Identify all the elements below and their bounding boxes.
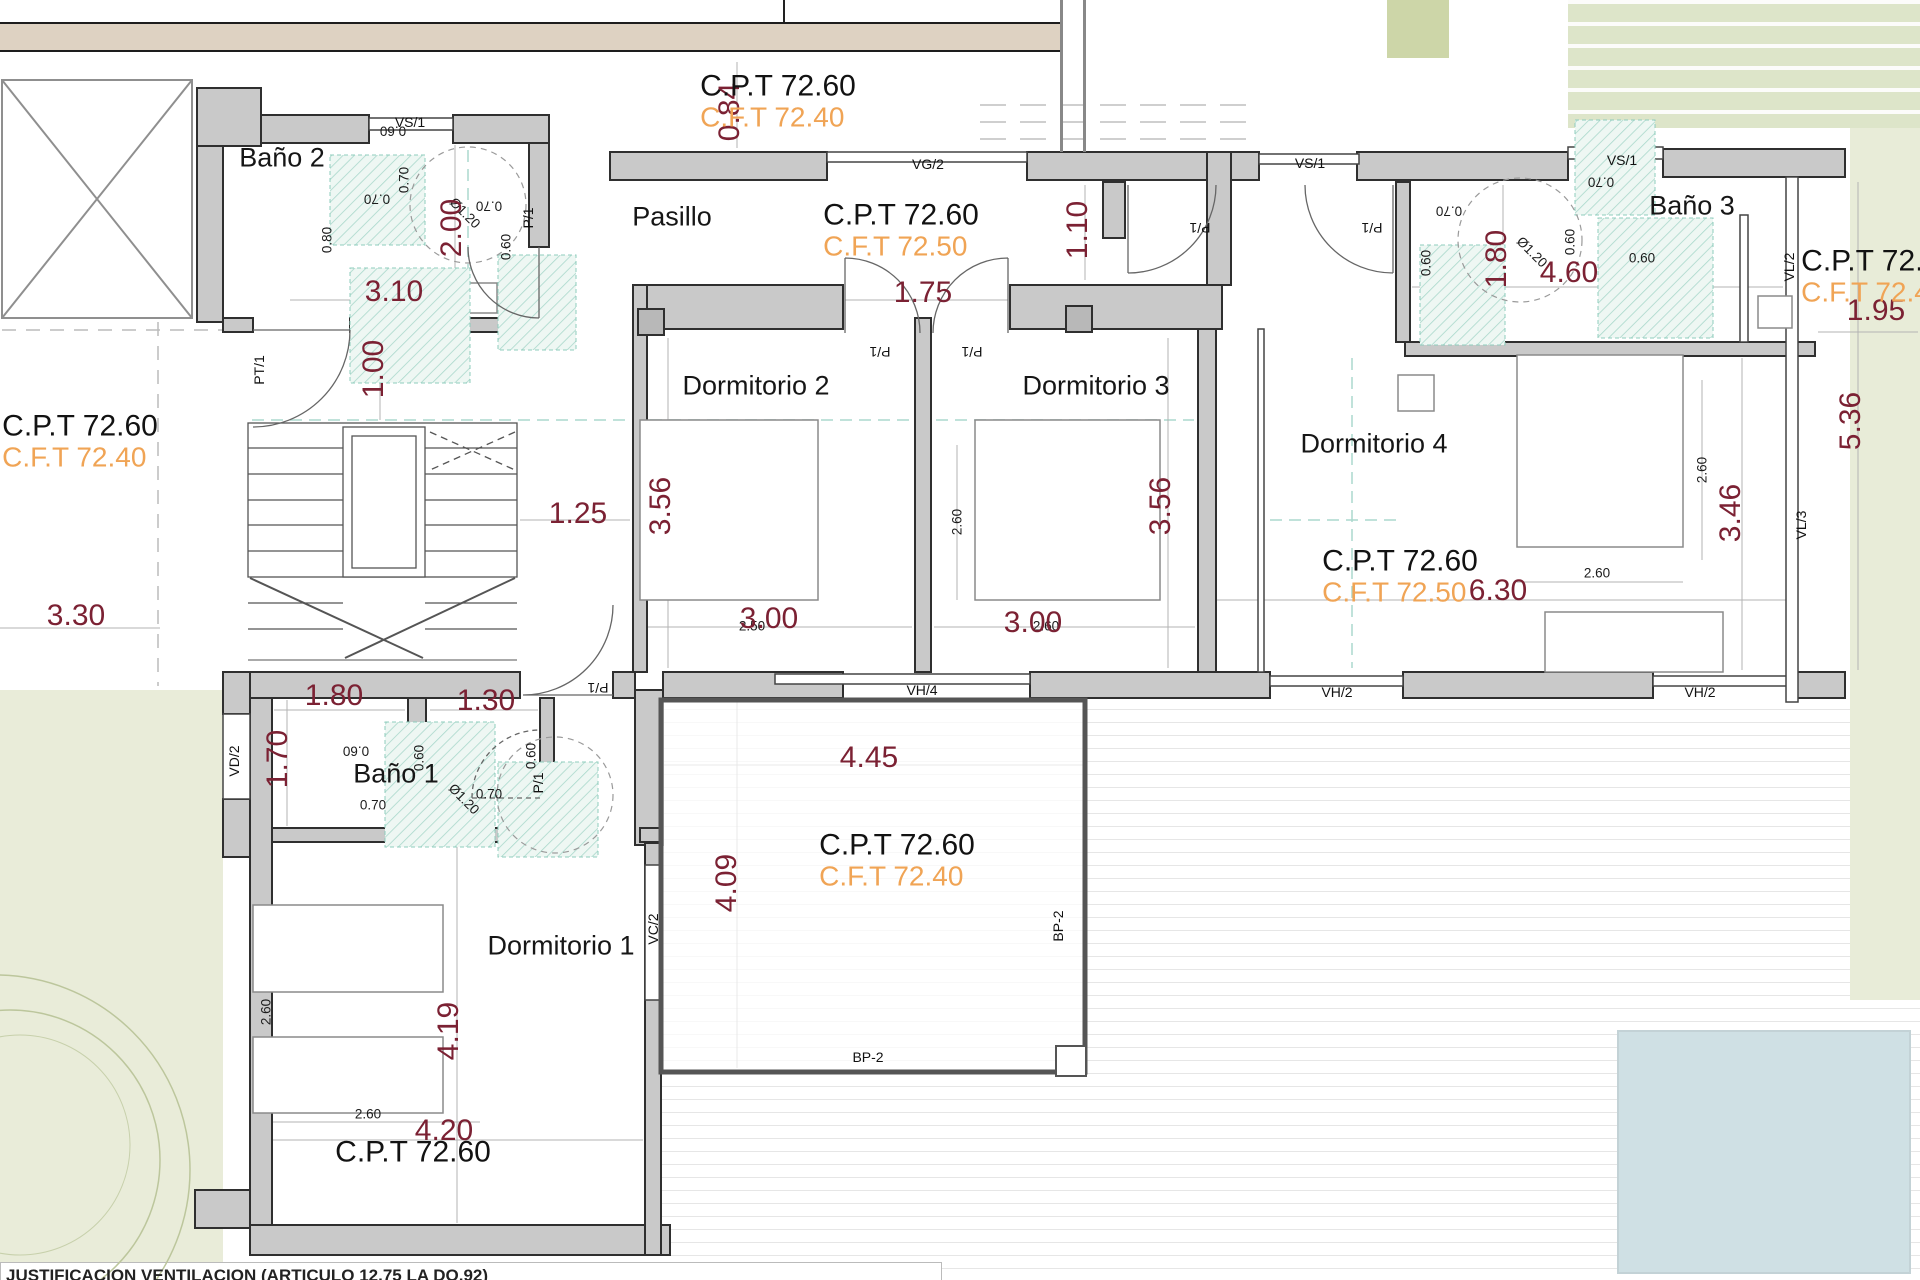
dimension-label: 1.30 xyxy=(457,684,515,718)
opening-tag: BP-2 xyxy=(1050,910,1066,941)
finished-level: C.F.T 72.40 xyxy=(1801,277,1920,306)
opening-tag: P/1 xyxy=(869,344,890,360)
dimension-label: 0.80 xyxy=(320,227,335,253)
finished-level: C.F.T 72.50 xyxy=(823,231,979,260)
dimension-label: 4.09 xyxy=(710,854,744,912)
level-marker: C.P.T 72.60C.F.T 72.40 xyxy=(700,71,856,132)
dimension-label: 4.60 xyxy=(1540,256,1598,290)
level-marker: C.P.T 72.60C.F.T 72.50 xyxy=(1322,546,1478,607)
dimension-label: 0.70 xyxy=(1588,175,1614,190)
opening-tag: P/1 xyxy=(1189,220,1210,236)
dimension-label: 2.60 xyxy=(950,509,965,535)
finished-level: C.F.T 72.40 xyxy=(2,442,158,471)
room-name: Baño 2 xyxy=(239,143,325,174)
dimension-label: 2.60 xyxy=(1584,566,1610,581)
opening-tag: VL/3 xyxy=(1793,511,1809,540)
opening-tag: VC/2 xyxy=(645,913,661,944)
dimension-label: 1.10 xyxy=(1061,201,1095,259)
room-name: Dormitorio 1 xyxy=(487,931,634,962)
finished-level: C.F.T 72.40 xyxy=(700,102,856,131)
dimension-label: 2.60 xyxy=(355,1107,381,1122)
opening-tag: P/1 xyxy=(530,772,546,793)
opening-tag: P/1 xyxy=(587,680,608,696)
dimension-label: 1.00 xyxy=(357,340,391,398)
dimension-label: 0.60 xyxy=(524,743,539,769)
dimension-label: 1.70 xyxy=(261,730,295,788)
pavement-level: C.P.T 72.60 xyxy=(2,411,158,443)
opening-tag: P/1 xyxy=(1361,220,1382,236)
opening-tag: VG/2 xyxy=(912,156,944,172)
dimension-label: 0.70 xyxy=(476,199,502,214)
labels-layer: Baño 2PasilloDormitorio 2Dormitorio 3Dor… xyxy=(0,0,1920,1280)
room-name: Baño 3 xyxy=(1649,191,1735,222)
dimension-label: 0.60 xyxy=(1629,251,1655,266)
opening-tag: VS/1 xyxy=(1607,152,1637,168)
pavement-level: C.P.T 72.60 xyxy=(819,830,975,862)
opening-tag: VH/2 xyxy=(1684,684,1715,700)
opening-tag: PT/1 xyxy=(251,355,267,385)
opening-tag: VL/2 xyxy=(1781,253,1797,282)
dimension-label: 0.60 xyxy=(343,744,369,759)
dimension-label: 1.75 xyxy=(894,276,952,310)
opening-tag: VS/1 xyxy=(1295,155,1325,171)
bottom-note: JUSTIFICACION VENTILACION (ARTICULO 12.7… xyxy=(6,1266,488,1280)
finished-level: C.F.T 72.50 xyxy=(1322,577,1478,606)
dimension-label: 3.56 xyxy=(1144,477,1178,535)
floor-plan: Baño 2PasilloDormitorio 2Dormitorio 3Dor… xyxy=(0,0,1920,1280)
pavement-level: C.P.T 72.60 xyxy=(823,200,979,232)
level-marker: C.P.T 72.60C.F.T 72.40 xyxy=(2,411,158,472)
pavement-level: C.P.T 72.60 xyxy=(700,71,856,103)
pavement-level: C.P.T 72.60 xyxy=(1322,546,1478,578)
pavement-level: C.P.T 72.60 xyxy=(1801,246,1920,278)
dimension-label: 2.60 xyxy=(1695,457,1710,483)
dimension-label: 0.60 xyxy=(499,234,514,260)
dimension-label: 0.70 xyxy=(360,798,386,813)
dimension-label: 3.56 xyxy=(644,477,678,535)
room-name: Dormitorio 2 xyxy=(682,371,829,402)
opening-tag: P/1 xyxy=(961,344,982,360)
dimension-label: 0.70 xyxy=(476,787,502,802)
dimension-label: 2.60 xyxy=(259,999,274,1025)
dimension-label: 3.00 xyxy=(1004,606,1062,640)
dimension-label: 2.00 xyxy=(435,199,469,257)
level-marker: C.P.T 72.60 xyxy=(335,1136,491,1168)
dimension-label: 4.45 xyxy=(840,741,898,775)
dimension-label: 0.60 xyxy=(1563,229,1578,255)
dimension-label: 1.80 xyxy=(1480,230,1514,288)
room-name: Dormitorio 4 xyxy=(1300,429,1447,460)
dimension-label: 4.19 xyxy=(432,1002,466,1060)
dimension-label: 0.70 xyxy=(364,192,390,207)
level-marker: C.P.T 72.60C.F.T 72.40 xyxy=(819,830,975,891)
dimension-label: 3.46 xyxy=(1714,484,1748,542)
pavement-level: C.P.T 72.60 xyxy=(335,1136,491,1168)
level-marker: C.P.T 72.60C.F.T 72.50 xyxy=(823,200,979,261)
dimension-label: 3.30 xyxy=(47,599,105,633)
dimension-label: 1.25 xyxy=(549,497,607,531)
opening-tag: VH/4 xyxy=(906,682,937,698)
level-marker: C.P.T 72.60C.F.T 72.40 xyxy=(1801,246,1920,307)
dimension-label: 3.00 xyxy=(740,602,798,636)
room-name: Dormitorio 3 xyxy=(1022,371,1169,402)
opening-tag: VS/1 xyxy=(395,114,425,130)
dimension-label: 3.10 xyxy=(365,275,423,309)
dimension-label: 1.80 xyxy=(305,679,363,713)
room-name: Pasillo xyxy=(632,202,712,233)
opening-tag: P/1 xyxy=(520,207,536,228)
dimension-label: 0.60 xyxy=(1419,250,1434,276)
opening-tag: BP-2 xyxy=(852,1049,883,1065)
finished-level: C.F.T 72.40 xyxy=(819,861,975,890)
opening-tag: VD/2 xyxy=(226,745,242,776)
room-name: Baño 1 xyxy=(353,759,439,790)
dimension-label: 5.36 xyxy=(1834,392,1868,450)
dimension-label: 0.70 xyxy=(397,167,412,193)
opening-tag: VH/2 xyxy=(1321,684,1352,700)
dimension-label: 0.70 xyxy=(1436,204,1462,219)
